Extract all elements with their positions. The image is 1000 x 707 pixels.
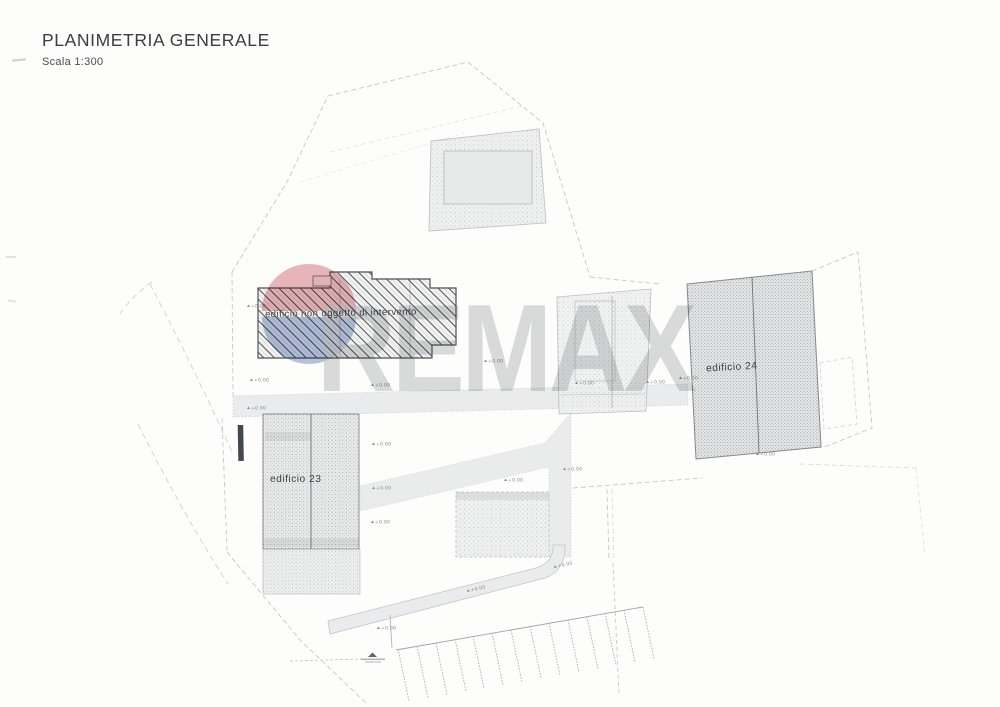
svg-text:+0.00: +0.00 (567, 467, 582, 473)
site-plan: edificio 23 edificio 24 edificio non ogg… (0, 0, 1000, 707)
elevation-marker: +0.00 (377, 626, 396, 632)
elevation-marker: +0.00 (372, 442, 391, 448)
elevation-marker: +0.00 (250, 378, 269, 384)
svg-text:+0.00: +0.00 (508, 478, 523, 484)
svg-text:+0.00: +0.00 (251, 406, 266, 412)
svg-text:+0.00: +0.00 (760, 452, 775, 458)
contour-lines (120, 282, 232, 584)
terrace-top (429, 129, 546, 231)
watermark: REMAX (262, 264, 696, 418)
wall-mark (238, 425, 244, 461)
building-24: edificio 24 (687, 271, 857, 459)
building-23-label: edificio 23 (270, 474, 321, 485)
svg-text:+0.00: +0.00 (376, 486, 391, 492)
svg-text:+0.00: +0.00 (375, 520, 390, 526)
benchmark-symbol (361, 653, 385, 663)
elevation-marker: +0.00 (371, 520, 390, 526)
remax-watermark-text: REMAX (317, 278, 696, 417)
svg-text:+0.00: +0.00 (376, 442, 391, 448)
svg-text:+0.00: +0.00 (381, 626, 396, 632)
elevation-marker: +0.00 (504, 478, 523, 484)
building-23: edificio 23 (263, 414, 360, 594)
pool-lower (456, 492, 549, 557)
svg-text:+0.00: +0.00 (254, 378, 269, 384)
